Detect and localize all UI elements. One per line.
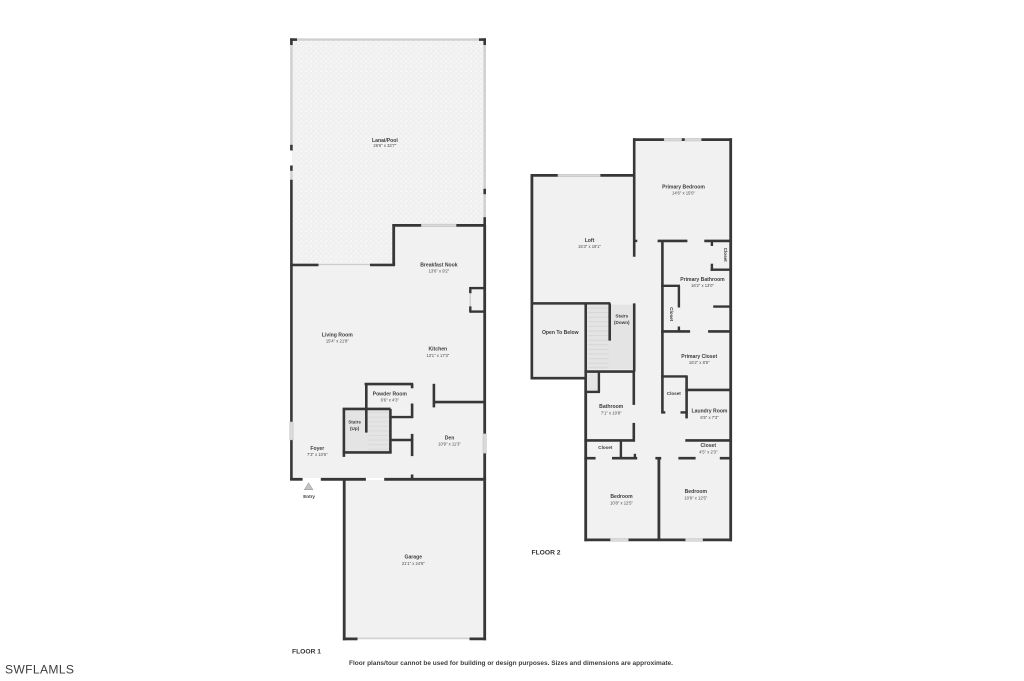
svg-text:Closet: Closet (723, 248, 728, 263)
svg-text:Closet: Closet (669, 307, 674, 322)
svg-text:7'3" x 10'6": 7'3" x 10'6" (307, 452, 328, 457)
svg-text:Living Room: Living Room (322, 332, 353, 338)
svg-text:Loft: Loft (585, 238, 595, 244)
svg-text:16'2" x 13'0": 16'2" x 13'0" (691, 283, 714, 288)
svg-text:4'5" x 2'3": 4'5" x 2'3" (699, 449, 718, 454)
svg-text:(Down): (Down) (614, 320, 630, 325)
svg-text:21'1" x 24'8": 21'1" x 24'8" (402, 561, 425, 566)
svg-text:Garage: Garage (405, 555, 423, 561)
svg-text:Breakfast Nook: Breakfast Nook (420, 262, 458, 268)
svg-text:16'2" x 8'5": 16'2" x 8'5" (689, 360, 710, 365)
svg-text:10'9" x 11'3": 10'9" x 11'3" (438, 442, 461, 447)
svg-text:Open To Below: Open To Below (542, 330, 579, 336)
svg-text:14'6" x 15'0": 14'6" x 15'0" (672, 191, 695, 196)
svg-text:Bedroom: Bedroom (610, 494, 633, 500)
svg-text:6'5" x 7'3": 6'5" x 7'3" (700, 415, 719, 420)
svg-text:Primary Bathroom: Primary Bathroom (680, 277, 725, 283)
svg-text:(Up): (Up) (350, 426, 360, 431)
svg-text:10'8" x 12'5": 10'8" x 12'5" (610, 500, 633, 505)
svg-text:Primary Bedroom: Primary Bedroom (662, 185, 705, 191)
svg-text:Closet: Closet (598, 445, 613, 450)
svg-text:FLOOR 1: FLOOR 1 (292, 649, 321, 656)
svg-text:Stairs: Stairs (348, 420, 361, 425)
svg-text:Closet: Closet (701, 443, 717, 449)
svg-text:Bathroom: Bathroom (599, 404, 624, 410)
svg-text:15'4" x 21'8": 15'4" x 21'8" (326, 339, 349, 344)
svg-text:Den: Den (445, 435, 455, 441)
svg-text:13'6" x 9'2": 13'6" x 9'2" (429, 269, 450, 274)
svg-text:26'6" x 33'7": 26'6" x 33'7" (373, 143, 396, 148)
svg-text:Powder Room: Powder Room (373, 392, 408, 398)
svg-text:Entry: Entry (303, 494, 315, 499)
svg-text:Primary Closet: Primary Closet (681, 354, 717, 360)
svg-text:SWFLAMLS: SWFLAMLS (5, 662, 74, 676)
svg-text:10'9" x 12'5": 10'9" x 12'5" (684, 495, 707, 500)
svg-text:Kitchen: Kitchen (428, 347, 447, 353)
svg-text:Floor plans/tour cannot be use: Floor plans/tour cannot be used for buil… (349, 660, 673, 667)
svg-text:13'1" x 17'3": 13'1" x 17'3" (426, 353, 449, 358)
svg-text:Laundry Room: Laundry Room (692, 409, 728, 415)
svg-text:Bedroom: Bedroom (685, 489, 708, 495)
svg-text:15'3" x 19'1": 15'3" x 19'1" (578, 244, 601, 249)
svg-text:Closet: Closet (667, 391, 682, 396)
svg-text:FLOOR 2: FLOOR 2 (532, 550, 561, 557)
svg-text:Stairs: Stairs (615, 314, 628, 319)
svg-text:6'6" x 4'3": 6'6" x 4'3" (381, 398, 400, 403)
svg-text:7'1" x 10'8": 7'1" x 10'8" (601, 410, 622, 415)
